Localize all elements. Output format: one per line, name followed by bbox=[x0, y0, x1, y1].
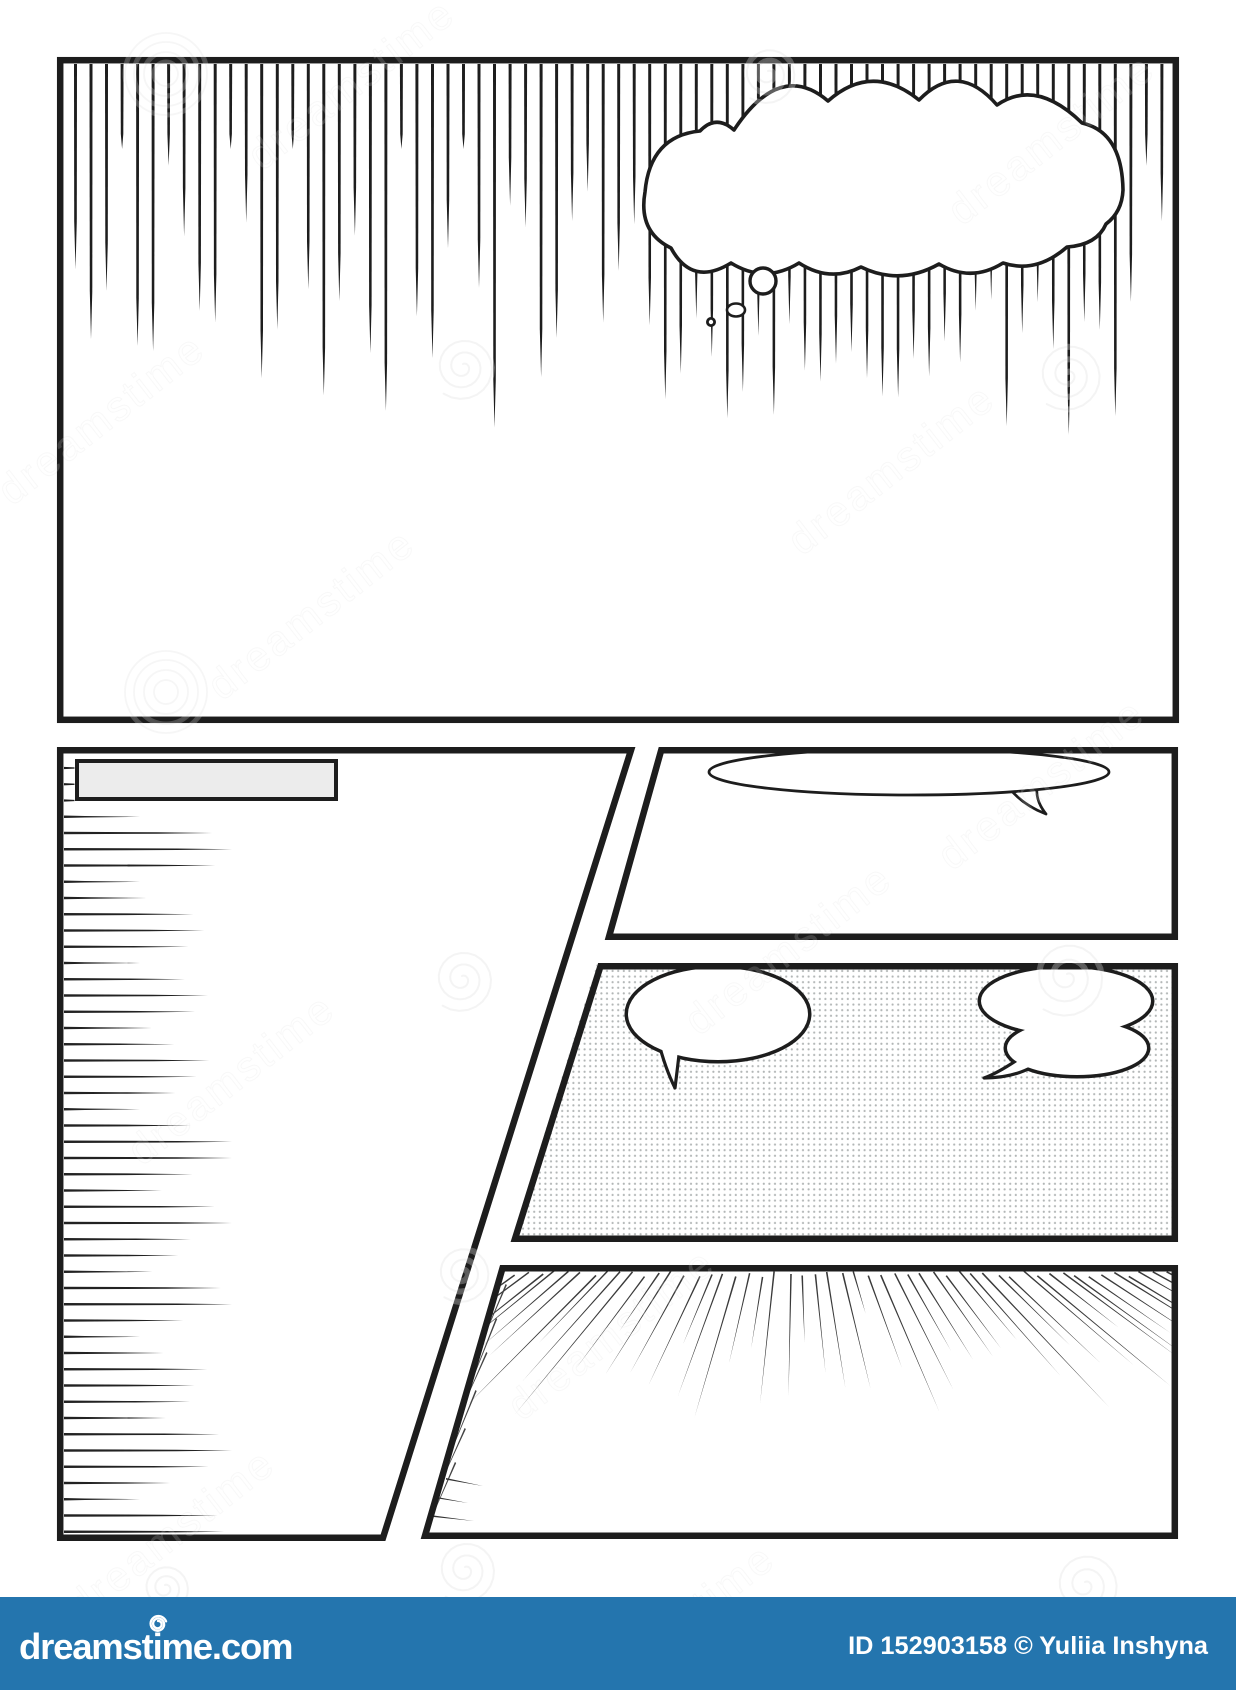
svg-text:dreamstime.com: dreamstime.com bbox=[19, 1626, 292, 1667]
svg-text:ID 152903158 © Yuliia Inshyna: ID 152903158 © Yuliia Inshyna bbox=[848, 1632, 1209, 1660]
